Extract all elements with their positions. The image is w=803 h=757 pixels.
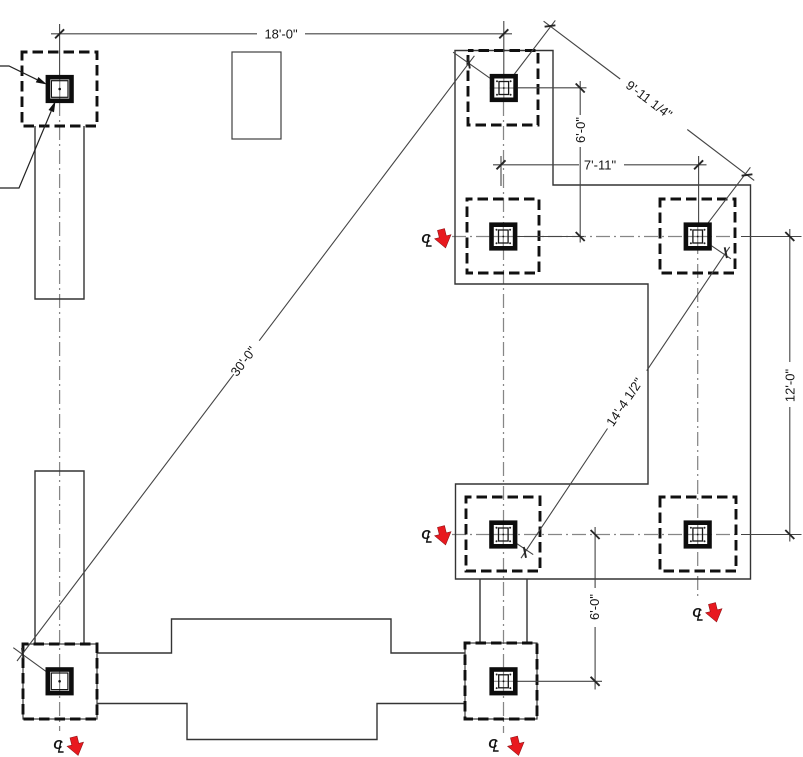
svg-text:12'-0": 12'-0" bbox=[782, 369, 797, 403]
svg-text:6'-0": 6'-0" bbox=[587, 594, 602, 620]
svg-text:7'-11": 7'-11" bbox=[584, 158, 617, 173]
svg-text:6'-0": 6'-0" bbox=[573, 117, 588, 143]
svg-text:18'-0": 18'-0" bbox=[264, 26, 298, 41]
